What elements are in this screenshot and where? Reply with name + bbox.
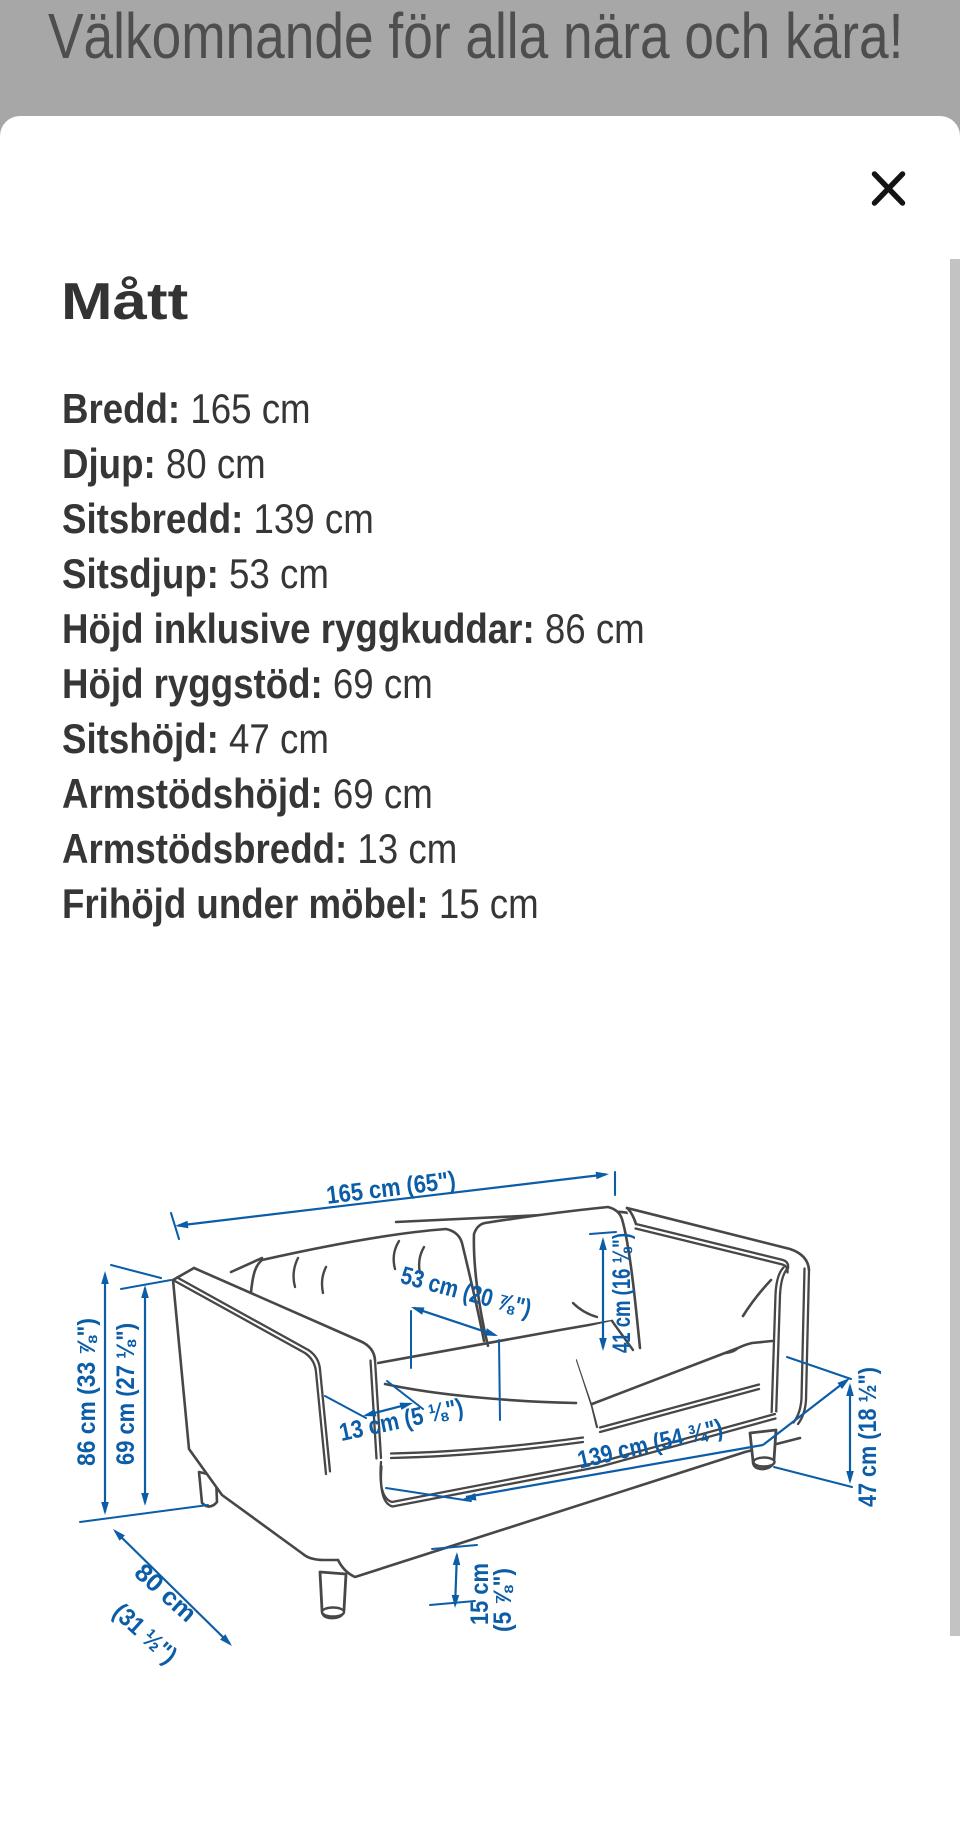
- svg-text:41 cm (16 ⅛"): 41 cm (16 ⅛"): [608, 1233, 636, 1353]
- svg-text:47 cm (18 ½"): 47 cm (18 ½"): [854, 1367, 882, 1507]
- svg-text:69 cm (27 ⅛"): 69 cm (27 ⅛"): [112, 1323, 140, 1465]
- svg-text:165 cm (65"): 165 cm (65"): [325, 1166, 457, 1210]
- svg-text:(5 ⅞"): (5 ⅞"): [489, 1568, 517, 1632]
- svg-text:86 cm (33 ⅞"): 86 cm (33 ⅞"): [73, 1318, 101, 1466]
